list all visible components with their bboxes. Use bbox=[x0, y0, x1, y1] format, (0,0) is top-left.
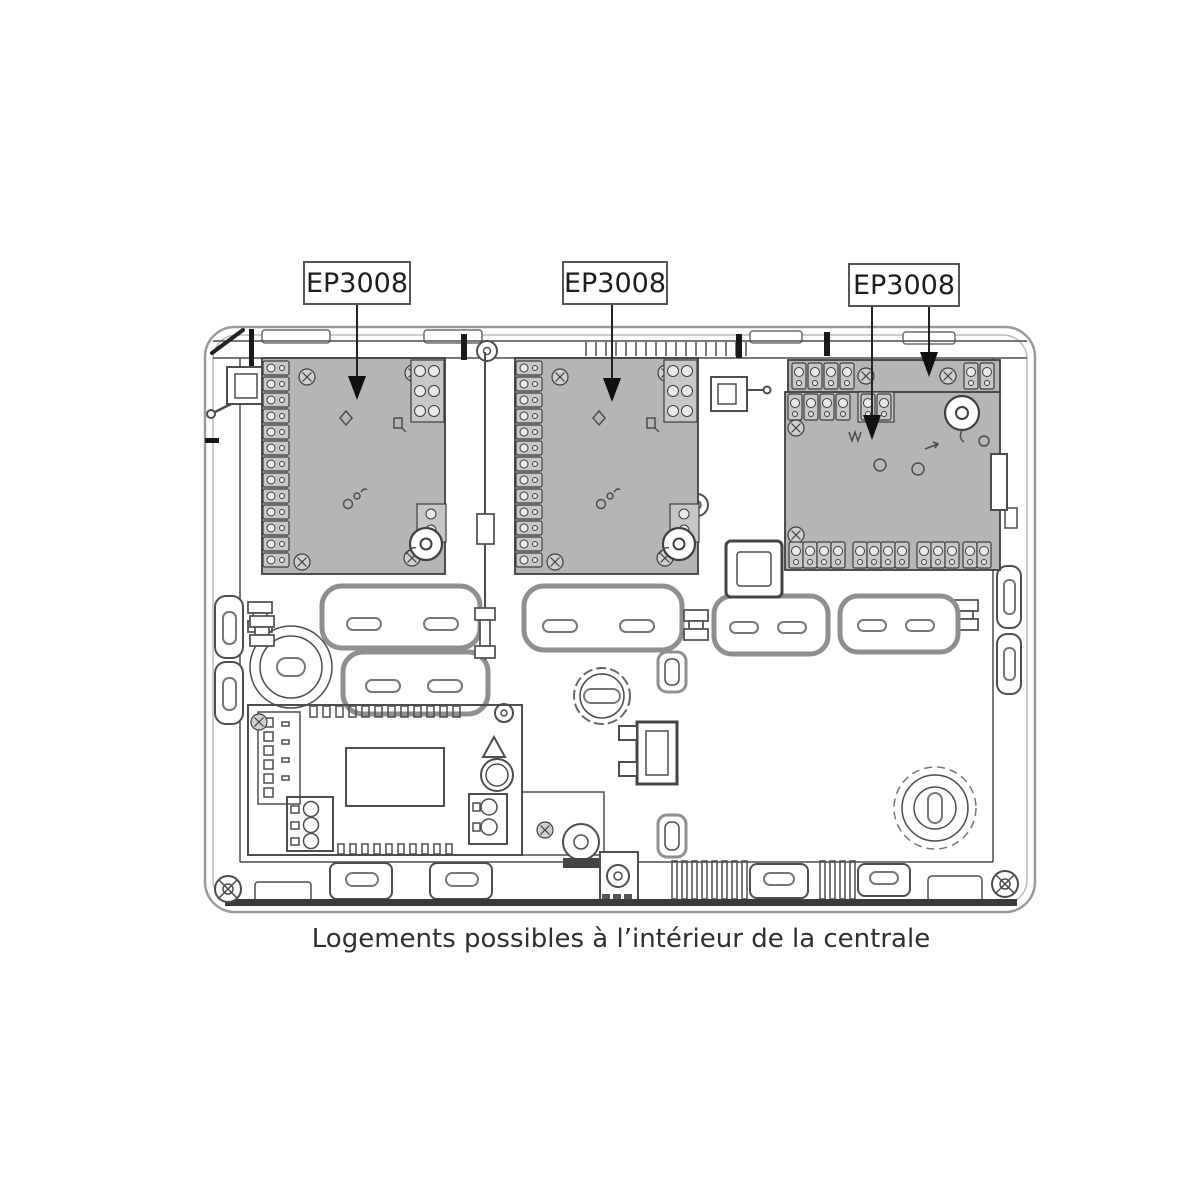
expansion-board-2 bbox=[515, 358, 699, 574]
rail-screw bbox=[477, 341, 497, 361]
small-knockout bbox=[658, 652, 686, 692]
diagram-caption: Logements possibles à l’intérieur de la … bbox=[312, 924, 930, 954]
buzzer bbox=[945, 396, 979, 430]
mount-screw bbox=[563, 824, 599, 860]
plate-screw bbox=[495, 704, 513, 722]
corner-screw bbox=[215, 876, 241, 902]
alarm-panel-interior-diagram: EP3008 EP3008 EP3008 Logements possibles… bbox=[0, 0, 1200, 1200]
module-label-1: EP3008 bbox=[306, 268, 408, 299]
holder-bracket bbox=[726, 541, 782, 597]
expansion-board-3-strip bbox=[788, 360, 1000, 393]
corner-screw bbox=[992, 871, 1018, 897]
main-control-board bbox=[785, 392, 1007, 570]
knockout bbox=[322, 586, 480, 648]
knockout bbox=[524, 586, 682, 650]
edge-connector bbox=[991, 454, 1007, 510]
module-label-3: EP3008 bbox=[853, 270, 955, 301]
module-label-2: EP3008 bbox=[564, 268, 666, 299]
cable-clamp bbox=[600, 852, 638, 902]
